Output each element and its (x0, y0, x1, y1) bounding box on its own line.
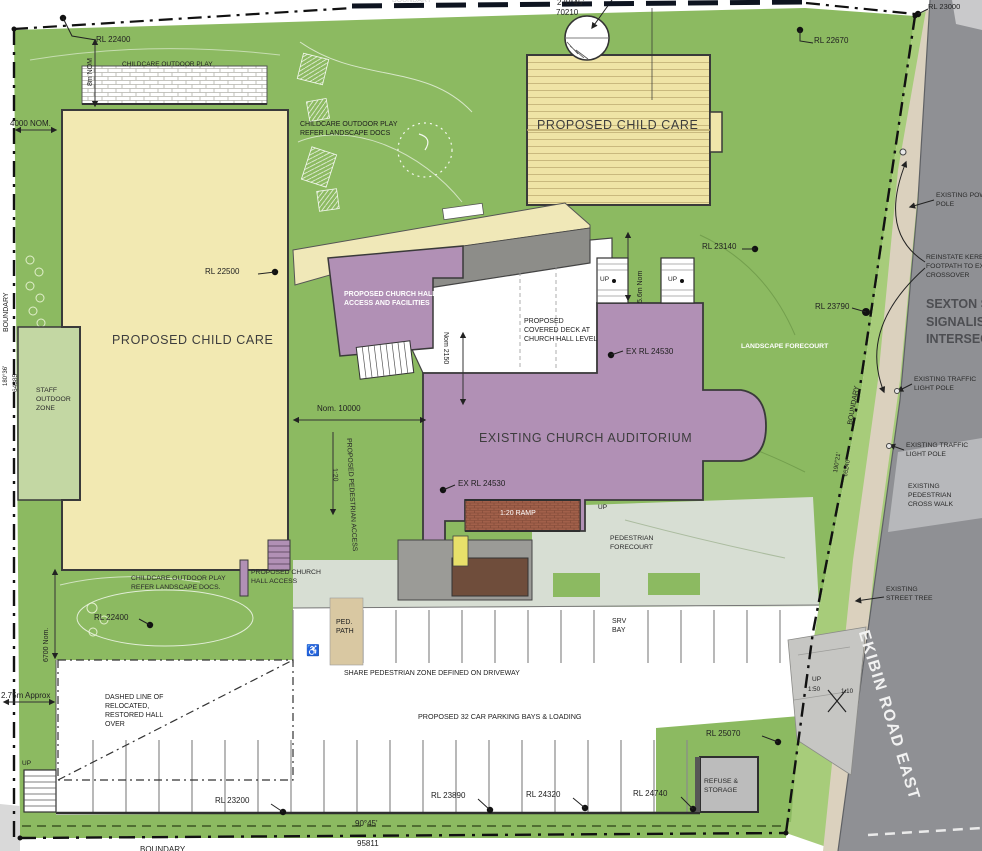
boundary-bottom-label: BOUNDARY (140, 845, 185, 851)
power-pole-line1: EXISTING POWER (936, 192, 982, 201)
traffic2-line2: LIGHT POLE (906, 451, 968, 460)
sexton-street-label: SEXTON ST SIGNALISE INTERSECT (926, 296, 982, 349)
reinstate-line1: REINSTATE KERB & (926, 254, 982, 263)
play-mid-line1: CHILDCARE OUTDOOR PLAY (300, 120, 398, 129)
boundary-top-label: BOUNDARY (392, 0, 432, 5)
boundary-left-label: BOUNDARY (2, 292, 11, 332)
staff-zone-label: STAFF OUTDOOR ZONE (36, 387, 71, 413)
crosswalk-line2: PEDESTRIAN (908, 492, 953, 501)
rl-22670: RL 22670 (814, 36, 848, 46)
play-mid-label: CHILDCARE OUTDOOR PLAY REFER LANDSCAPE D… (300, 120, 398, 138)
tree-line1: EXISTING (886, 586, 933, 595)
deck-line2: COVERED DECK AT (524, 326, 597, 335)
dh-line3: RESTORED HALL (105, 711, 163, 720)
pl-line1: CHILDCARE OUTDOOR PLAY (131, 575, 226, 584)
power-pole-note: EXISTING POWER POLE (936, 192, 982, 210)
landscape-forecourt-label: LANDSCAPE FORECOURT (741, 343, 828, 352)
refuse-line1: REFUSE & (704, 778, 738, 787)
power-pole-line2: POLE (936, 201, 982, 210)
reinstate-note: REINSTATE KERB & FOOTPATH TO EXIST. CROS… (926, 254, 982, 280)
sexton-line2: SIGNALISE (926, 314, 982, 332)
share-zone-label: SHARE PEDESTRIAN ZONE DEFINED ON DRIVEWA… (344, 669, 520, 678)
sexton-line3: INTERSECT (926, 331, 982, 349)
traffic1-line2: LIGHT POLE (914, 385, 976, 394)
rl-23000: RL 23000 (928, 2, 960, 12)
up-label-crossover: UP (812, 676, 821, 684)
hall-access-facilities-label: PROPOSED CHURCH HALL ACCESS AND FACILITI… (344, 290, 437, 308)
pp-line2: PATH (336, 627, 354, 636)
street-tree-note: EXISTING STREET TREE (886, 586, 933, 604)
ex-rl-24530-a: EX RL 24530 (626, 347, 673, 357)
staff-line3: ZONE (36, 405, 71, 414)
grade-1-10: 1:10 (841, 688, 853, 696)
boundary-bottom-distance: 95811 (357, 839, 379, 849)
boundary-left-distance: 64385 (12, 374, 20, 392)
ped-path-label: PED. PATH (336, 618, 354, 636)
parking-label: PROPOSED 32 CAR PARKING BAYS & LOADING (418, 712, 582, 721)
dim-5-6m: 5.6m Nom (636, 271, 645, 303)
dim-2150: Nom 2150 (441, 332, 450, 364)
srv-line1: SRV (612, 617, 626, 626)
dashed-hall-label: DASHED LINE OF RELOCATED, RESTORED HALL … (105, 693, 163, 729)
ramp-label: 1:20 RAMP (500, 509, 536, 518)
boundary-bottom-bearing: 90°45' (355, 819, 378, 829)
play-strip-label: CHILDCARE OUTDOOR PLAY (122, 61, 213, 69)
up-label-exit-stairs: UP (22, 760, 31, 768)
entry-platform (398, 536, 532, 600)
childcare-left-label: PROPOSED CHILD CARE (112, 332, 273, 348)
traffic2-line1: EXISTING TRAFFIC (906, 442, 968, 451)
play-mid-line2: REFER LANDSCAPE DOCS (300, 129, 398, 138)
haf-line2: ACCESS AND FACILITIES (344, 299, 437, 308)
rl-23140: RL 23140 (702, 242, 736, 252)
refuse-line2: STORAGE (704, 787, 738, 796)
grade-1-50: 1:50 (808, 686, 820, 694)
staff-line1: STAFF (36, 387, 71, 396)
tree-line2: STREET TREE (886, 595, 933, 604)
play-low-label: CHILDCARE OUTDOOR PLAY REFER LANDSCAPE D… (131, 575, 226, 593)
crosswalk-line3: CROSS WALK (908, 501, 953, 510)
corner-paving (0, 804, 20, 851)
pp-line1: PED. (336, 618, 354, 627)
crosswalk-note: EXISTING PEDESTRIAN CROSS WALK (908, 483, 953, 509)
rl-23890: RL 23890 (431, 791, 465, 801)
staff-line2: OUTDOOR (36, 396, 71, 405)
rl-23790: RL 23790 (815, 302, 849, 312)
ha-line1: PROPOSED CHURCH (251, 569, 321, 578)
traffic-pole-note-1: EXISTING TRAFFIC LIGHT POLE (914, 376, 976, 394)
dim-4000: 4000 NOM. (10, 119, 51, 129)
rl-22400-top: RL 22400 (96, 35, 130, 45)
dh-line4: OVER (105, 720, 163, 729)
rl-22500: RL 22500 (205, 267, 239, 277)
pf-line1: PEDESTRIAN (610, 535, 653, 544)
rl-24740: RL 24740 (633, 789, 667, 799)
rl-22400-low: RL 22400 (94, 613, 128, 623)
site-plan-drawing: CHILDCARE OUTDOOR PLAY RL 22400 8m NOM 4… (0, 0, 982, 851)
traffic1-line1: EXISTING TRAFFIC (914, 376, 976, 385)
up-label-forecourt: UP (598, 504, 607, 512)
crosswalk-line1: EXISTING (908, 483, 953, 492)
dim-6700: 6700 Nom. (42, 628, 51, 662)
dim-275: 2.75m Approx (1, 691, 50, 701)
staff-outdoor-zone (18, 327, 80, 500)
deck-line1: PROPOSED (524, 317, 597, 326)
boundary-left-bearing: 180°36' (3, 366, 11, 386)
wheelchair-icon: ♿ (306, 644, 320, 658)
covered-deck-label: PROPOSED COVERED DECK AT CHURCH HALL LEV… (524, 317, 597, 344)
ped-access-grade: 1:20 (329, 468, 339, 482)
ha-line2: HALL ACCESS (251, 578, 321, 587)
dh-line2: RELOCATED, (105, 702, 163, 711)
auditorium-label: EXISTING CHURCH AUDITORIUM (479, 430, 692, 446)
childcare-top-label: PROPOSED CHILD CARE (537, 117, 698, 133)
paved-play-strip (82, 66, 267, 104)
srv-line2: BAY (612, 626, 626, 635)
up-label-stair2: UP (668, 276, 677, 284)
exit-stairs (24, 770, 56, 812)
srv-bay-label: SRV BAY (612, 617, 626, 635)
main-stairs (356, 341, 413, 379)
dh-line1: DASHED LINE OF (105, 693, 163, 702)
refuse-label: REFUSE & STORAGE (704, 778, 738, 796)
reinstate-line2: FOOTPATH TO EXIST. (926, 263, 982, 272)
pedestrian-forecourt-label: PEDESTRIAN FORECOURT (610, 535, 653, 553)
landscape-strip-1 (553, 573, 600, 597)
haf-line1: PROPOSED CHURCH HALL (344, 290, 437, 299)
pl-line2: REFER LANDSCAPE DOCS. (131, 584, 226, 593)
hall-access-label: PROPOSED CHURCH HALL ACCESS (251, 569, 321, 587)
rl-25070: RL 25070 (706, 729, 740, 739)
ex-rl-24530-b: EX RL 24530 (458, 479, 505, 489)
sexton-line1: SEXTON ST (926, 296, 982, 314)
dim-10000: Nom. 10000 (317, 404, 361, 414)
boundary-top-distance: 70210 (556, 8, 578, 18)
deck-line3: CHURCH HALL LEVEL (524, 335, 597, 344)
pf-line2: FORECOURT (610, 544, 653, 553)
up-label-stair1: UP (600, 276, 609, 284)
landscape-strip-2 (648, 573, 700, 595)
reinstate-line3: CROSSOVER (926, 272, 982, 281)
rl-23200: RL 23200 (215, 796, 249, 806)
traffic-pole-note-2: EXISTING TRAFFIC LIGHT POLE (906, 442, 968, 460)
dim-8m: 8m NOM (86, 58, 95, 86)
rl-24320: RL 24320 (526, 790, 560, 800)
